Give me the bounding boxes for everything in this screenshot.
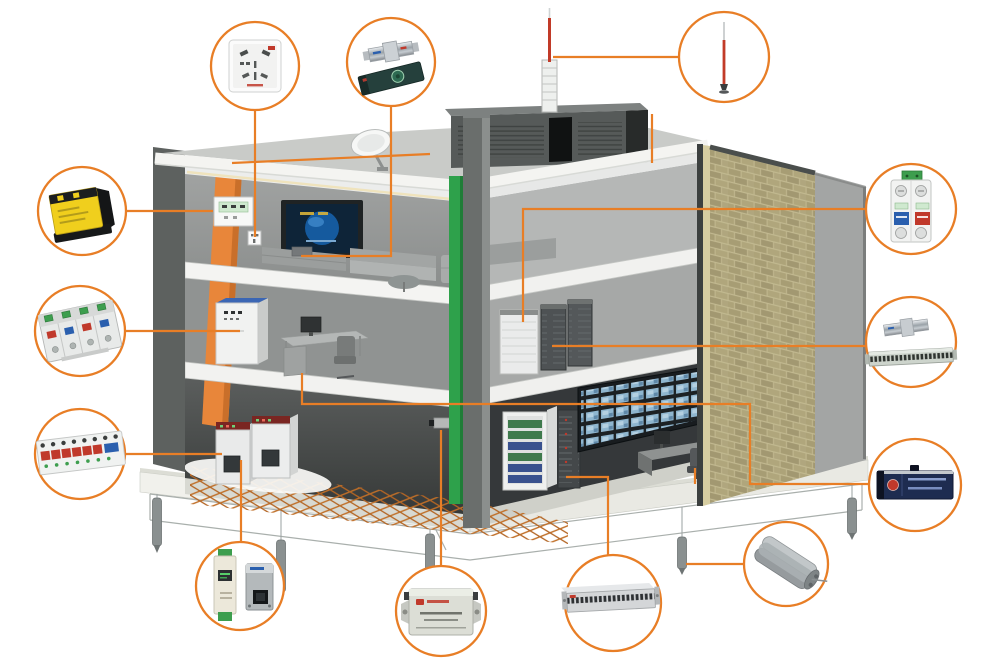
callout-signal-protection-rack-unit xyxy=(869,439,961,531)
brick-wall xyxy=(710,146,815,503)
diagram-canvas xyxy=(0,0,1000,667)
diagram-stage xyxy=(0,0,1000,667)
callout-coax-spd-patch-panel xyxy=(865,297,958,387)
callout-coaxial-surge-arresters xyxy=(347,18,435,106)
right-side-wall xyxy=(815,172,866,474)
dvr-rack xyxy=(503,406,557,490)
switchgear-cabinets xyxy=(216,414,298,484)
video-spd-box-icon xyxy=(401,589,481,635)
rooftop-air-terminal xyxy=(548,18,551,62)
server-racks-floor2 xyxy=(500,300,592,374)
callout-power-spd-class-b xyxy=(38,167,126,255)
two-pole-spd-icon xyxy=(891,171,931,242)
corner-column xyxy=(463,112,490,528)
left-cut-wall xyxy=(153,147,185,472)
power-panel xyxy=(214,197,253,226)
callout-video-surge-protector xyxy=(396,566,486,656)
wall-socket-icon xyxy=(229,40,281,92)
rack-panel-1u-icon xyxy=(561,582,660,612)
callout-power-spd-class-c xyxy=(35,286,125,376)
brick-facade xyxy=(697,144,866,506)
penthouse-door xyxy=(549,117,572,162)
ground-electrode xyxy=(153,494,162,553)
grounding-riser xyxy=(449,176,463,504)
desktop-pc xyxy=(284,346,306,376)
callout-signal-spd-module-pair xyxy=(196,542,284,630)
callout-lightning-rod xyxy=(679,12,769,102)
callout-power-spd-multi-pole xyxy=(35,409,126,499)
callout-power-spd-2-pole xyxy=(866,164,956,254)
callout-wall-socket-spd xyxy=(211,22,299,110)
